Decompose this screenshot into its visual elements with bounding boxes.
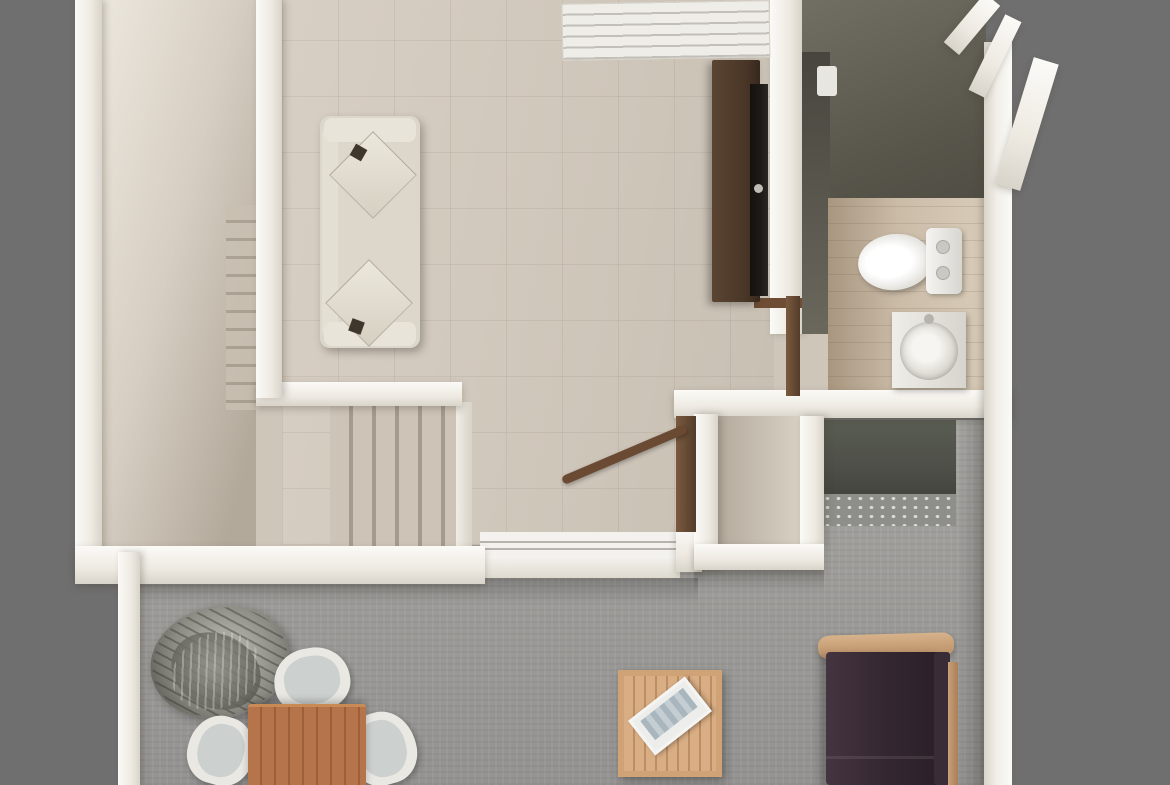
- stairwell-floor: [716, 416, 802, 548]
- toilet: [856, 226, 968, 298]
- lower-staircase: [330, 402, 458, 546]
- vanity-basin: [900, 322, 958, 380]
- hall-partition-wall: [256, 0, 282, 398]
- bathroom-south-wall: [674, 390, 1012, 418]
- tv-wall: [770, 0, 802, 334]
- dining-table: [248, 704, 366, 785]
- potted-plant: [150, 606, 290, 718]
- tv-logo-dot: [754, 184, 763, 193]
- toilet-button-1: [936, 240, 950, 254]
- privacy-panel: [822, 420, 956, 494]
- toilet-button-2: [936, 266, 950, 280]
- coffee-table: [618, 670, 722, 777]
- left-exterior-wall: [75, 0, 102, 578]
- bath-fixture-box: [817, 66, 837, 96]
- pebble-strip: [822, 494, 956, 526]
- sliding-door: [480, 532, 680, 578]
- outdoor-sofa: [816, 628, 960, 785]
- stairwell-shadow: [694, 570, 824, 592]
- terrace-right-shade: [958, 420, 984, 785]
- vanity: [892, 312, 966, 388]
- toilet-tank: [926, 228, 962, 294]
- vanity-faucet: [924, 314, 934, 324]
- staircase-side-wall: [456, 402, 472, 546]
- hallway-floor-patch: [774, 330, 830, 392]
- lower-left-wall: [118, 552, 140, 785]
- living-south-wall: [256, 382, 462, 406]
- living-sofa: [320, 116, 420, 348]
- stairwell-south-lip: [694, 544, 824, 570]
- louvered-window: [562, 0, 771, 61]
- outdoor-sofa-frame-right: [948, 662, 958, 785]
- stairwell-east-wall: [800, 416, 824, 546]
- outdoor-sofa-seam: [826, 756, 942, 759]
- outdoor-sofa-body: [826, 652, 942, 785]
- upper-rail-vertical: [786, 296, 800, 396]
- toilet-bowl: [855, 230, 934, 293]
- floorplan-render: [0, 0, 1170, 785]
